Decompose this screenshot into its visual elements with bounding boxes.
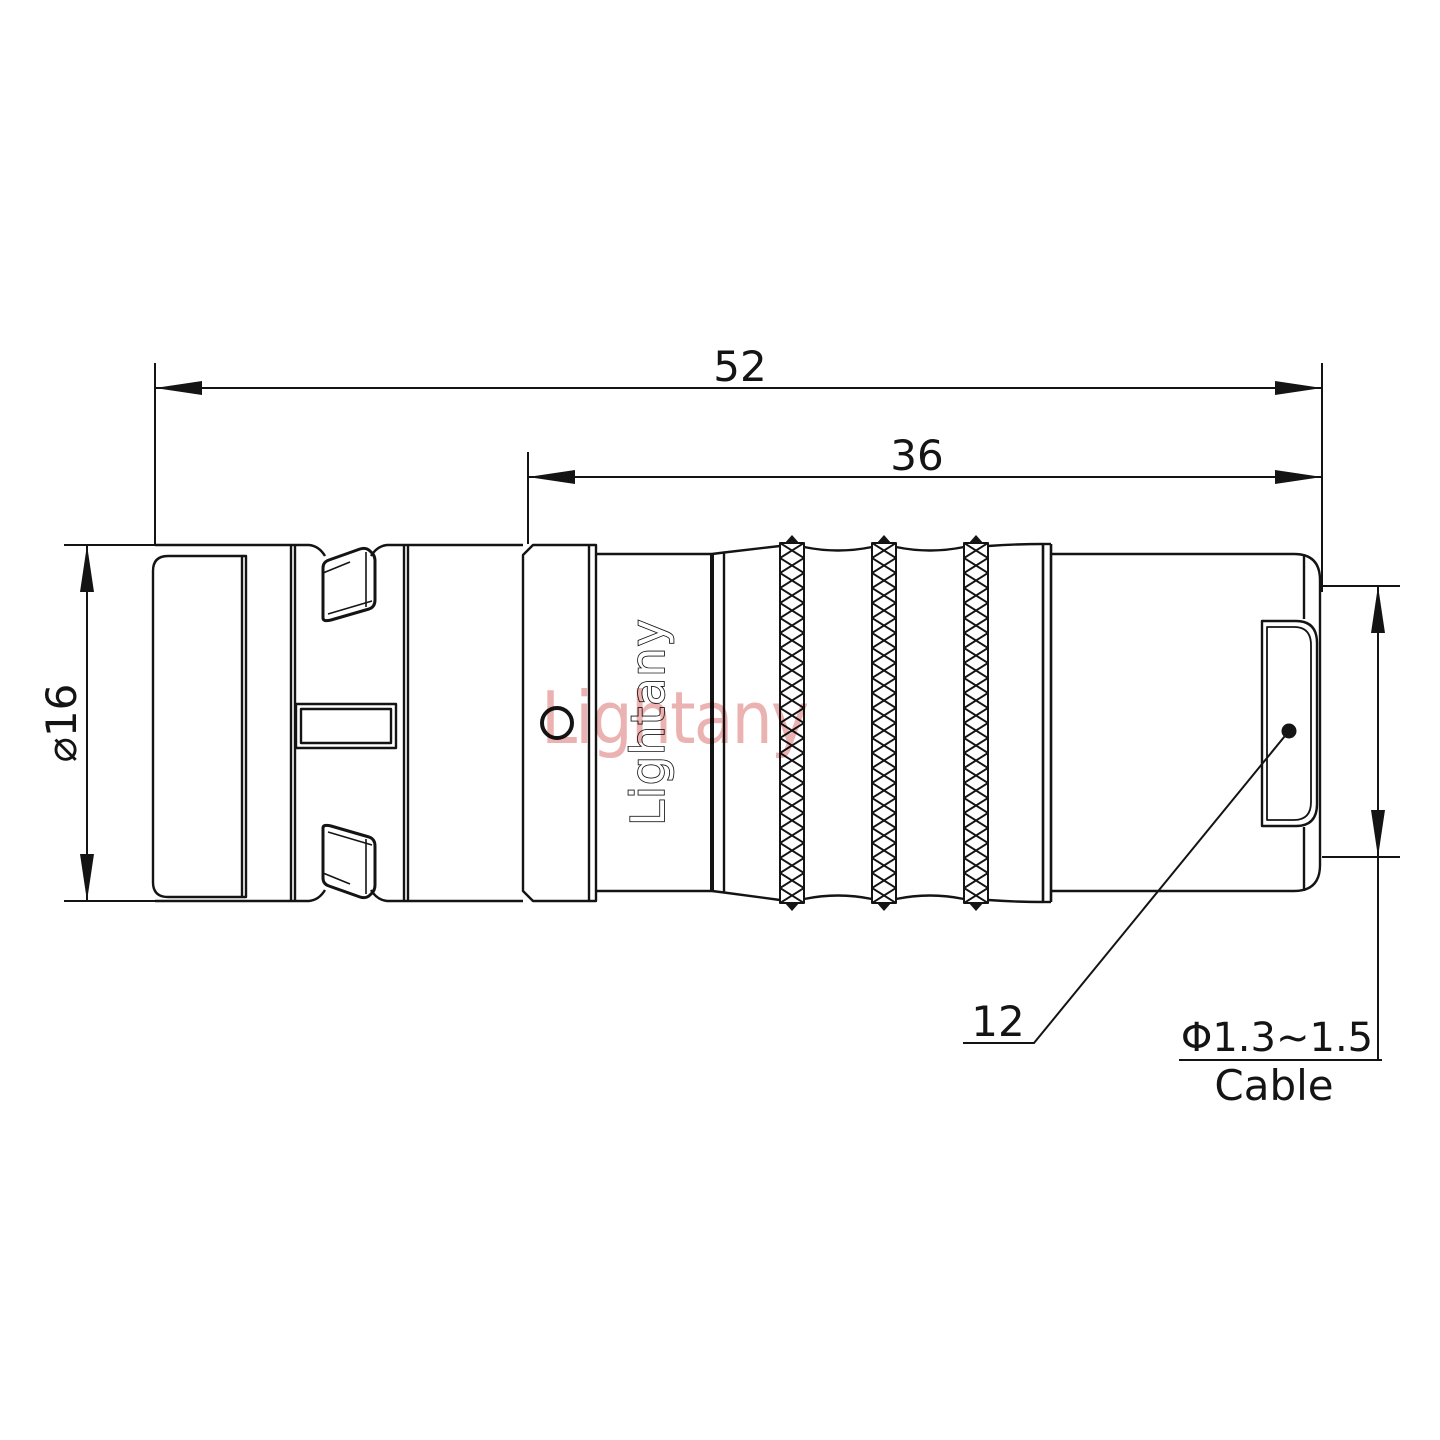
knurl-tip-top-3 (968, 535, 984, 544)
technical-drawing-canvas: 52 36 ⌀16 12 Φ1.3~1.5 Cable (0, 0, 1440, 1440)
bushing-outer (1262, 621, 1317, 826)
knurl-section (780, 535, 1051, 911)
bayonet-block (291, 546, 408, 900)
knurl-tip-bottom-1 (784, 902, 800, 911)
taper-top (712, 546, 780, 554)
arrowhead-36-right (1275, 470, 1322, 484)
rear-cap (1051, 554, 1320, 891)
arrowhead-52-right (1275, 381, 1322, 395)
silhouette-top-right (371, 545, 523, 556)
front-cap (153, 556, 246, 897)
center-slot-outer (296, 704, 396, 748)
leader-rear-diameter (963, 724, 1297, 1044)
knurl-band-1 (780, 543, 804, 903)
dim-value-overall-length: 52 (713, 342, 766, 391)
knurl-surface-bottom-2 (896, 896, 964, 900)
dim-value-rear-diameter: 12 (971, 997, 1024, 1046)
knurl-tip-bottom-2 (876, 902, 892, 911)
knurl-band-3 (964, 543, 988, 903)
knurl-surface-top-1 (804, 547, 872, 551)
arrowhead-12-bottom (1371, 810, 1385, 857)
cable-bushing (1262, 621, 1317, 826)
dim-value-front-diameter: ⌀16 (37, 684, 86, 763)
bayonet-key-bottom (323, 825, 375, 897)
silhouette-top-left (155, 545, 325, 556)
front-shell-silhouette (155, 545, 523, 901)
collar-hole (542, 708, 572, 738)
arrowhead-52-left (155, 381, 202, 395)
cable-diameter-label: Φ1.3~1.5 (1181, 1015, 1373, 1061)
dim-value-barrel-length: 36 (890, 431, 943, 480)
knurl-surface-top-3 (988, 544, 1043, 546)
rear-cap-outline (1051, 554, 1320, 891)
front-cap-outline (153, 556, 246, 897)
arrowhead-36-left (528, 470, 575, 484)
key-bottom-bevel-1 (323, 873, 350, 884)
knurl-tip-bottom-3 (968, 902, 984, 911)
knurl-tip-top-2 (876, 535, 892, 544)
taper-bottom (712, 891, 780, 900)
arrowhead-dia16-bottom (80, 854, 94, 901)
leader-dot (1282, 724, 1297, 739)
knurl-surface-bottom-3 (988, 900, 1043, 902)
knurl-surface-top-2 (896, 547, 964, 551)
knurl-tip-top-1 (784, 535, 800, 544)
knurl-band-2 (872, 543, 896, 903)
arrowhead-dia16-top (80, 545, 94, 592)
key-top-bevel-1 (323, 562, 350, 573)
key-top-outline (323, 548, 375, 620)
silhouette-bottom-left (155, 890, 325, 901)
barrel-logo-text: Lightany (621, 618, 675, 825)
knurl-surface-bottom-1 (804, 896, 872, 900)
dimension-rear-diameter (1322, 586, 1400, 1060)
collar (523, 545, 596, 901)
silhouette-bottom-right (371, 890, 523, 901)
bayonet-key-top (323, 548, 375, 620)
cable-word-label: Cable (1214, 1061, 1333, 1110)
center-slot-inner (301, 709, 391, 743)
connector-drawing-svg: 52 36 ⌀16 12 Φ1.3~1.5 Cable (0, 0, 1440, 1440)
arrowhead-12-top (1371, 586, 1385, 633)
key-bottom-outline (323, 825, 375, 897)
collar-outline (523, 545, 596, 901)
connector-body (153, 535, 1320, 911)
